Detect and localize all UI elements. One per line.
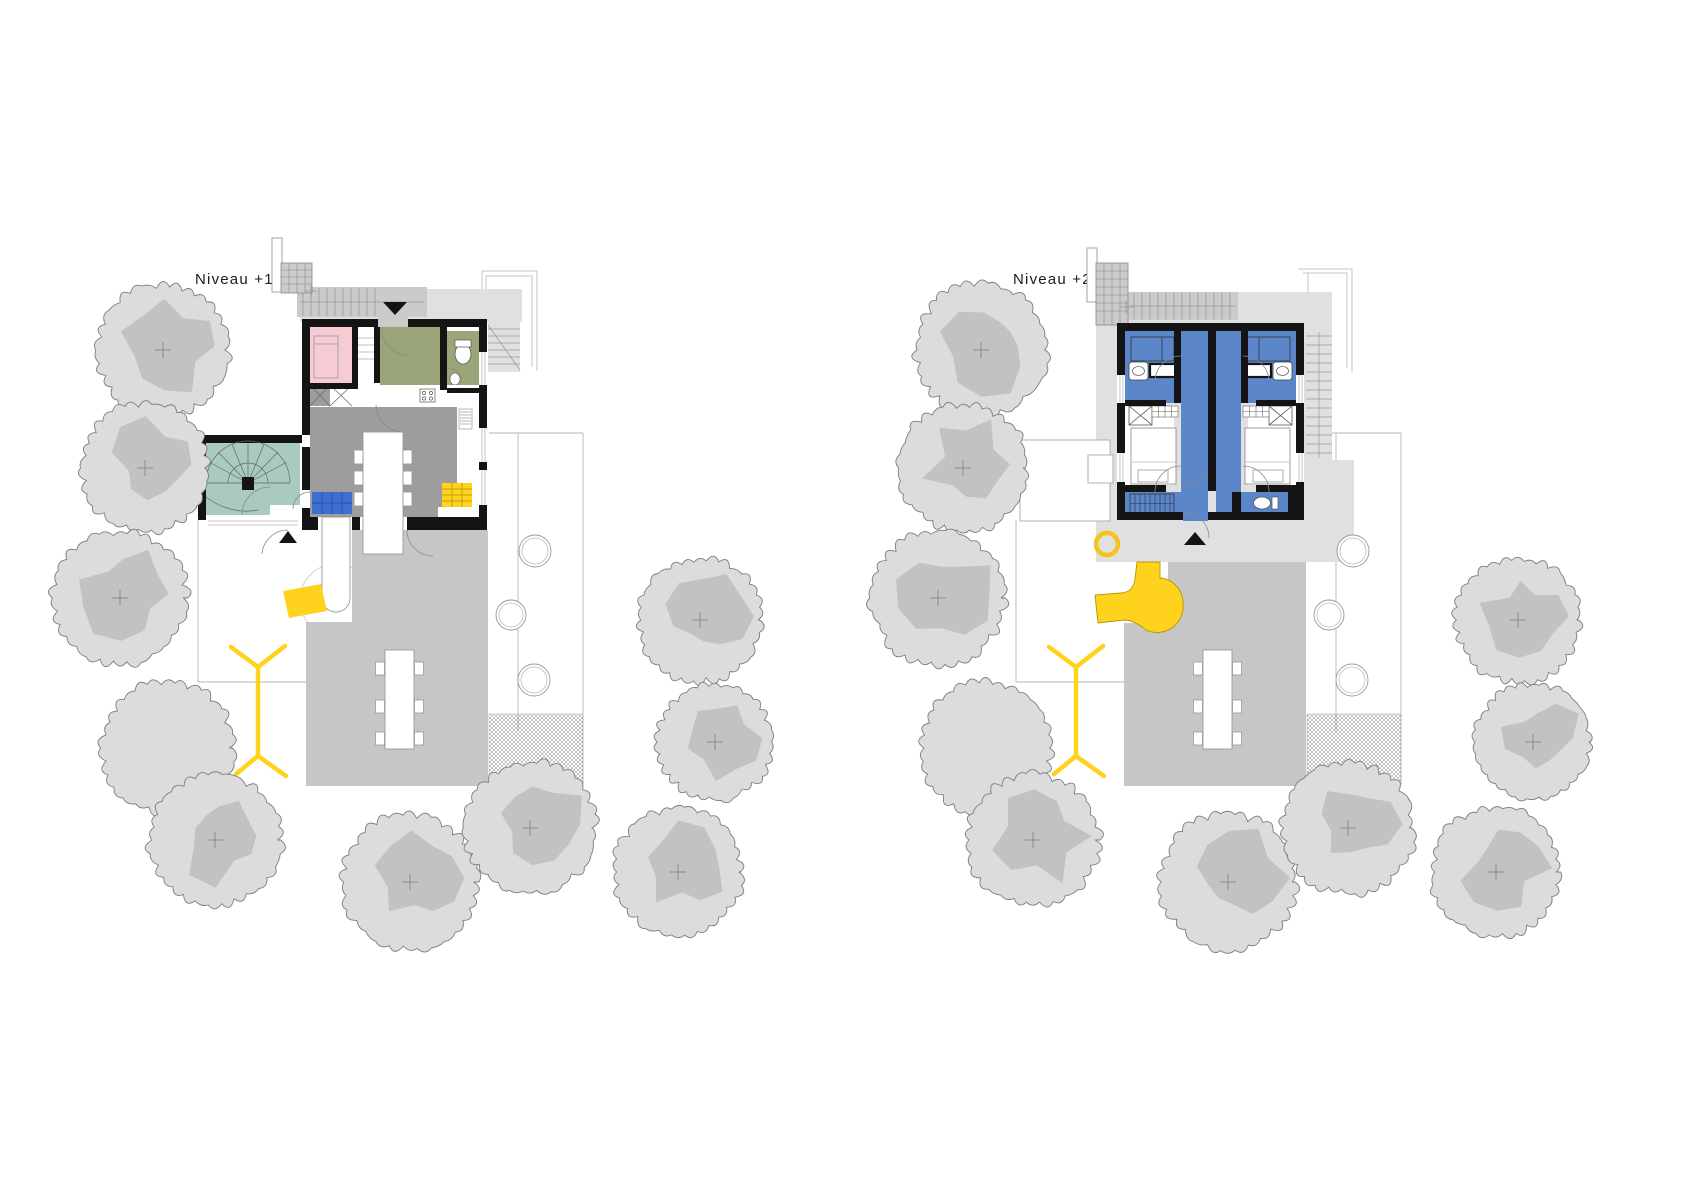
hammock-arm <box>236 756 258 774</box>
site-plan-canvas: Niveau +1 <box>0 0 1684 1191</box>
fridge-vents <box>459 409 472 429</box>
tree <box>48 529 191 667</box>
stepping-stone <box>1314 600 1344 630</box>
tree <box>1430 807 1562 939</box>
hammock-arm <box>231 647 258 667</box>
wc-right <box>1254 497 1279 509</box>
tree <box>1279 760 1417 898</box>
entrance-arrow-icon <box>279 531 297 543</box>
tree <box>78 401 210 535</box>
stair-side-rail <box>272 238 282 292</box>
sofa-blue <box>312 492 352 514</box>
hammock-arm <box>1076 646 1103 667</box>
plan-niveau-2: Niveau +2 <box>1013 248 1354 786</box>
windows-east <box>479 352 487 505</box>
tree <box>1157 811 1300 953</box>
tree <box>912 280 1051 416</box>
wc-sink <box>450 373 460 385</box>
dining-table <box>354 432 412 554</box>
tree <box>1452 557 1583 685</box>
corridor-right <box>1216 331 1241 512</box>
picnic-table <box>385 650 414 749</box>
closet <box>358 331 374 367</box>
hammock-arm <box>258 756 286 776</box>
bench-seat <box>1194 700 1203 713</box>
bench-seat <box>376 700 385 713</box>
plan-niveau-1: Niveau +1 <box>195 238 537 786</box>
picnic-table <box>1203 650 1232 749</box>
room-entry-olive <box>380 327 440 385</box>
tree <box>896 402 1029 533</box>
corridor-left <box>1181 331 1208 512</box>
bench-seat <box>1233 700 1242 713</box>
yellow-stair <box>438 483 479 517</box>
stepping-stone <box>496 600 526 630</box>
tree <box>94 281 232 418</box>
tree <box>1472 683 1593 801</box>
hammock-stand <box>231 646 286 776</box>
tree <box>339 811 481 952</box>
site-plan-page: Niveau +1 <box>0 0 1684 1191</box>
plan-label-niveau-1: Niveau +1 <box>195 271 274 288</box>
tree <box>636 556 764 685</box>
annex-spiral-stair <box>198 435 302 525</box>
bench-seat <box>376 662 385 675</box>
bench-seat <box>1233 732 1242 745</box>
stepping-stone <box>518 664 550 696</box>
hammock-arm <box>1049 647 1076 667</box>
room-pink <box>310 327 352 383</box>
bench-seat <box>415 662 424 675</box>
bench-seat <box>1194 662 1203 675</box>
stepping-stone <box>1337 535 1369 567</box>
hammock-stand <box>1049 646 1104 776</box>
stepping-stone <box>1336 664 1368 696</box>
hammock-arm <box>258 646 285 667</box>
hammock-arm <box>1054 756 1076 774</box>
bench-seat <box>1233 662 1242 675</box>
skylight-outline <box>1088 455 1113 483</box>
tree <box>866 529 1008 669</box>
plan-label-niveau-2: Niveau +2 <box>1013 271 1092 288</box>
bench-seat <box>415 700 424 713</box>
bench-seat <box>415 732 424 745</box>
stepping-stone <box>519 535 551 567</box>
bench-seat <box>1194 732 1203 745</box>
stove <box>420 389 435 402</box>
tree <box>613 805 745 937</box>
tree <box>654 682 773 802</box>
bench-seat <box>376 732 385 745</box>
hammock-arm <box>1076 756 1104 776</box>
